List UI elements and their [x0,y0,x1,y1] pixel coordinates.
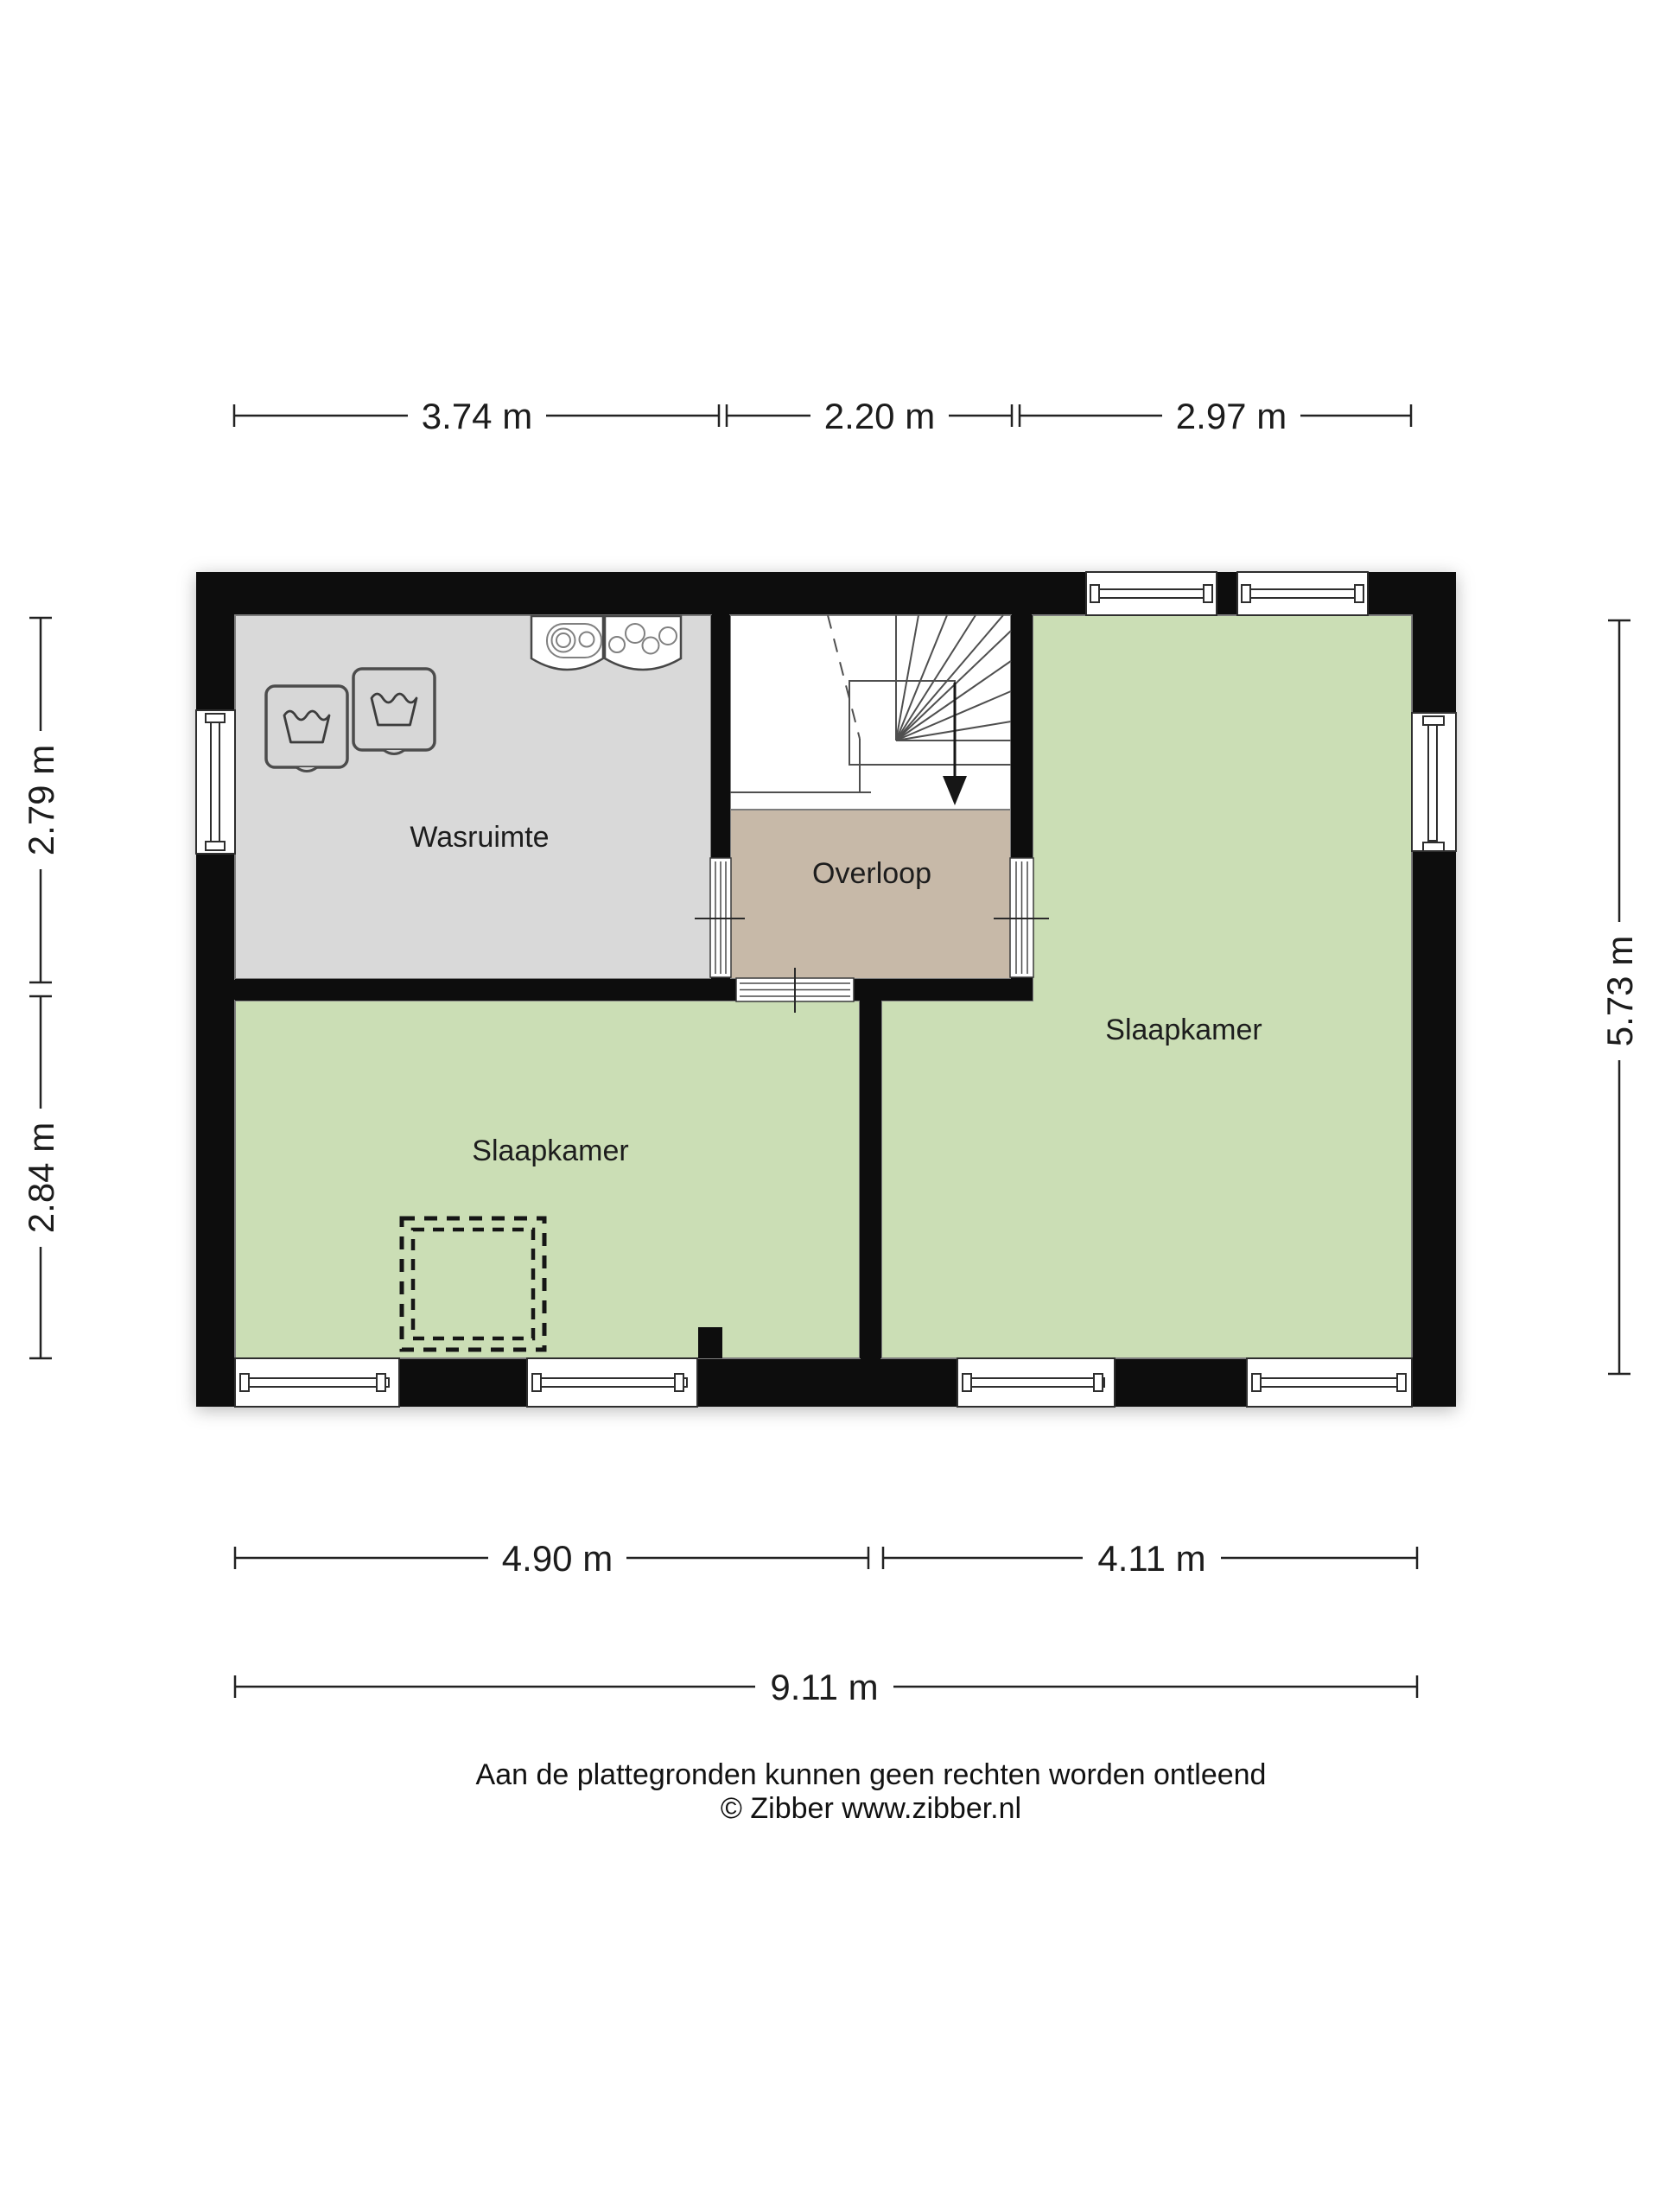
footer-credit: © Zibber www.zibber.nl [721,1792,1021,1825]
dimension-bottom: 4.90 m 4.11 m [235,1537,1417,1579]
window-bottom-1 [235,1358,399,1407]
floor-plan-image: Wasruimte Overloop Slaapkamer Slaapkamer… [0,0,1659,2212]
window-top-a [1086,572,1217,615]
dim-left-2: 2.84 m [21,1122,61,1233]
room-overloop-floor [730,810,1011,979]
room-label-slaapkamer-left: Slaapkamer [472,1135,628,1167]
dimension-left: 2.79 m 2.84 m [20,618,61,1358]
room-slaapkamer-left-floor [235,1001,860,1358]
heater-icon [605,616,681,670]
wall-stub [698,1327,722,1358]
dimension-right: 5.73 m [1599,620,1640,1374]
room-label-overloop: Overloop [812,857,931,890]
washing-machine-icon [266,686,347,772]
window-bottom-2 [527,1358,697,1407]
window-bottom-4 [1247,1358,1412,1407]
floor-plan-page: Wasruimte Overloop Slaapkamer Slaapkamer… [0,0,1659,2212]
dim-top-1: 3.74 m [422,396,532,436]
footer: Aan de plattegronden kunnen geen rechten… [476,1758,1267,1825]
dim-right-1: 5.73 m [1599,936,1640,1046]
floor-plan: Wasruimte Overloop Slaapkamer Slaapkamer [196,572,1456,1407]
dimension-overall: 9.11 m [235,1666,1417,1707]
window-top-b [1237,572,1368,615]
dimension-top: 3.74 m 2.20 m 2.97 m [234,395,1411,436]
boiler-icon [531,616,603,670]
window-left [196,710,235,854]
room-stairwell-floor [730,615,1011,810]
dim-bottom-2: 4.11 m [1097,1538,1205,1579]
dim-top-3: 2.97 m [1176,396,1287,436]
dim-bottom-1: 4.90 m [502,1538,613,1579]
room-label-wasruimte: Wasruimte [410,821,549,854]
washing-machine-icon [353,669,435,754]
dim-top-2: 2.20 m [824,396,935,436]
room-label-slaapkamer-right: Slaapkamer [1105,1014,1262,1046]
dim-overall-width: 9.11 m [770,1667,878,1707]
footer-disclaimer: Aan de plattegronden kunnen geen rechten… [476,1758,1267,1791]
window-right [1412,713,1456,851]
dim-left-1: 2.79 m [21,745,61,855]
window-bottom-3 [957,1358,1115,1407]
